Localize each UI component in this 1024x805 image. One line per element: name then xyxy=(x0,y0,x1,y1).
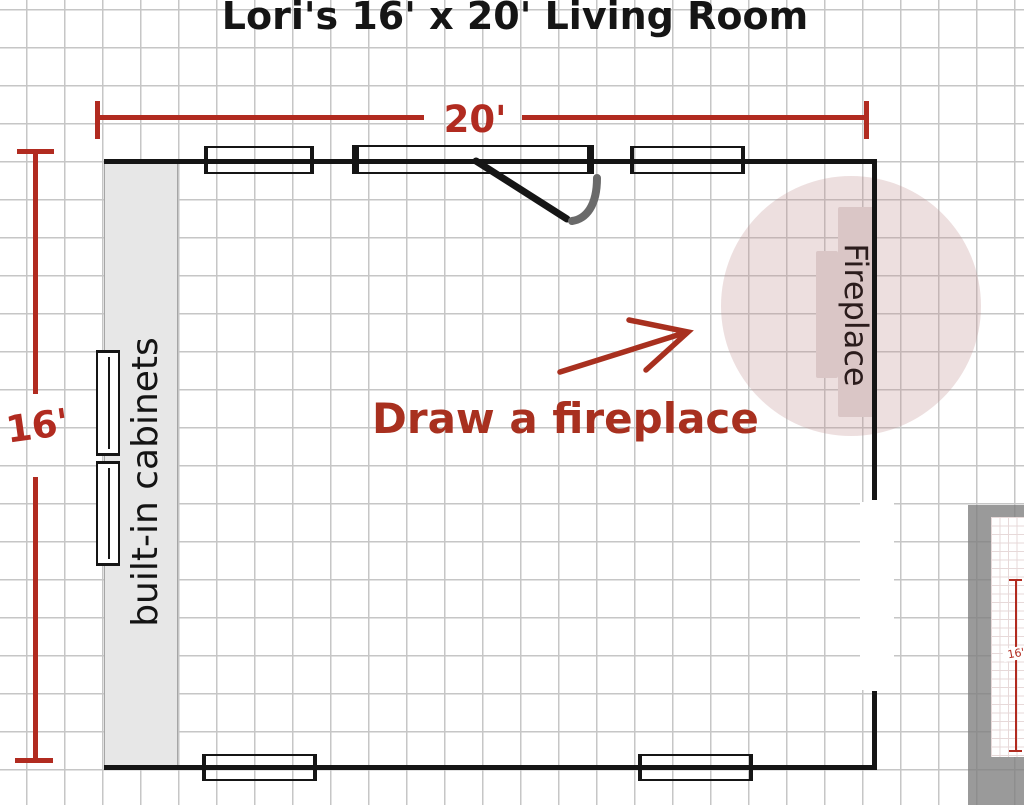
window-left-upper xyxy=(96,350,120,456)
window-top-right xyxy=(630,146,745,174)
inset-page: 16' xyxy=(991,517,1024,757)
inset-dimension-tick xyxy=(1009,579,1022,581)
dimension-top-label: 20' xyxy=(436,98,514,141)
dimension-top-tick xyxy=(95,101,100,139)
window-left-lower xyxy=(96,461,120,566)
annotation-text: Draw a fireplace xyxy=(372,394,742,443)
inset-dimension-tick xyxy=(1009,750,1022,752)
window-bottom-right xyxy=(638,754,753,781)
fireplace-label: Fireplace xyxy=(838,225,874,405)
cabinets-label: built-in cabinets xyxy=(125,302,167,662)
window-bottom-left xyxy=(202,754,317,781)
dimension-left-tick xyxy=(17,149,54,154)
window-top-center xyxy=(352,145,594,174)
dimension-left-tick xyxy=(15,758,53,763)
floorplan-canvas[interactable]: Lori's 16' x 20' Living Room 20' 16' bui… xyxy=(0,0,1024,805)
annotation-arrowhead xyxy=(629,320,688,370)
inset-thumbnail[interactable]: 16' xyxy=(968,505,1024,805)
window-top-left xyxy=(204,146,314,174)
inset-dimension-line xyxy=(1015,580,1017,752)
wall-right-lower xyxy=(872,691,877,770)
dimension-top-line xyxy=(97,115,424,120)
annotation-arrow xyxy=(560,333,684,372)
dimension-left-line xyxy=(33,151,38,394)
door-swing-arc xyxy=(572,178,597,221)
dimension-left-label: 16' xyxy=(3,401,64,451)
page-title: Lori's 16' x 20' Living Room xyxy=(215,0,815,38)
dimension-left-line xyxy=(33,477,38,762)
dimension-top-line xyxy=(522,115,868,120)
fireplace-hearth-shape xyxy=(816,251,838,378)
dimension-top-tick xyxy=(864,101,869,139)
inset-dimension-label: 16' xyxy=(1002,645,1024,662)
wall-opening xyxy=(860,502,894,690)
